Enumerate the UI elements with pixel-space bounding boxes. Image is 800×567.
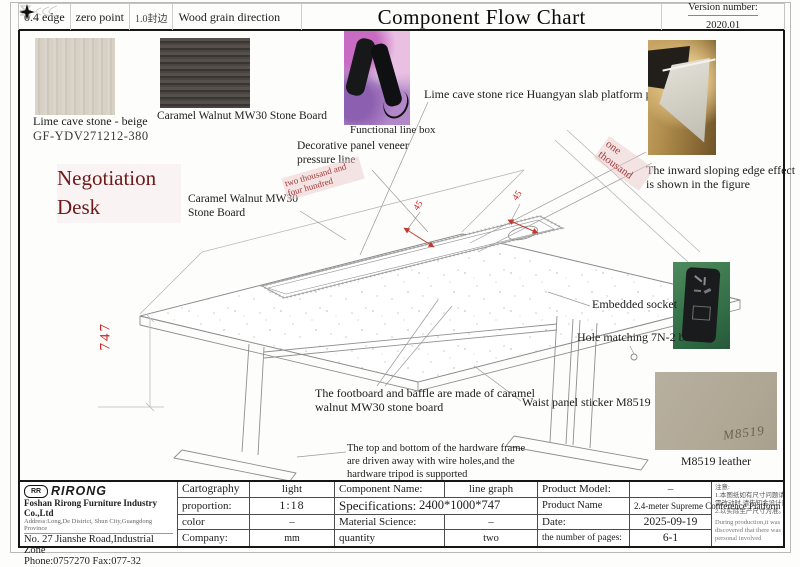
company-name: Foshan Rirong Furniture Industry Co.,Ltd — [24, 498, 173, 518]
caramel-board-label: Caramel Walnut MW30 Stone Board — [188, 193, 320, 221]
socket-hole — [694, 289, 701, 291]
company-address: Address:Long,De District, Shun City,Guan… — [24, 518, 173, 534]
notes-cell: 注意: 1.本图纸如有尺寸问题请及时反馈, 需改动时,请先知会设计部。 2.以实… — [712, 482, 783, 546]
company-street: No. 27 Jianshe Road,Industrial Zone — [24, 534, 173, 556]
embedded-socket-label: Embedded socket — [592, 297, 677, 311]
functional-box-photo — [344, 31, 410, 125]
corner-edge-photo — [648, 40, 716, 155]
proportion-value: 1:18 — [250, 498, 335, 515]
quantity-value: two — [445, 530, 538, 546]
pages-label: the number of pages: — [538, 530, 630, 546]
company-unit-label: Company: — [178, 530, 250, 546]
material-value: – — [445, 515, 538, 531]
hardware-frame-label: The top and bottom of the hardware frame… — [347, 442, 539, 481]
note-line: personal involved — [715, 535, 780, 543]
company-info: RR RIRONG Foshan Rirong Furniture Indust… — [20, 482, 178, 546]
company-phone: Phone:0757270 Fax:077-32 — [24, 556, 173, 567]
m8519-swatch: M8519 — [655, 372, 777, 450]
dim-height-747: 747 — [98, 311, 115, 351]
decorative-line-label: Decorative panel veneer pressure line — [297, 140, 449, 168]
product-name-label: Product Name — [538, 498, 630, 515]
note-line: During production,it was — [715, 519, 780, 527]
m8519-caption: M8519 leather — [655, 454, 777, 469]
cartography-label: Cartography — [178, 482, 250, 498]
color-value: – — [250, 515, 335, 531]
socket-window — [692, 305, 711, 320]
component-name-label: Component Name: — [335, 482, 445, 498]
lime-stone-swatch — [35, 38, 115, 115]
product-model-value: – — [630, 482, 712, 498]
product-name-value: 2.4-meter Supreme Conference Platform — [630, 498, 712, 515]
color-label: color — [178, 515, 250, 531]
product-title: Negotiation Desk — [57, 164, 181, 223]
inward-edge-label: The inward sloping edge effect is shown … — [646, 163, 796, 192]
socket-hole — [704, 288, 712, 294]
cartography-value: light — [250, 482, 335, 498]
lime-stone-code: GF-YDV271212-380 — [33, 129, 149, 144]
title-block: RR RIRONG Foshan Rirong Furniture Indust… — [18, 480, 785, 548]
date-value: 2025-09-19 — [630, 515, 712, 531]
socket-hole — [694, 275, 702, 282]
specifications-label: Specifications: — [339, 498, 416, 514]
lime-stone-caption: Lime cave stone - beige — [33, 114, 148, 129]
company-unit-value: mm — [250, 530, 335, 546]
slab-panel-label: Lime cave stone rice Huangyan slab platf… — [424, 87, 672, 101]
note-line: 注意: — [715, 484, 780, 492]
walnut-caption: Caramel Walnut MW30 Stone Board — [157, 110, 327, 122]
rirong-logo-icon: RR — [24, 485, 48, 498]
quantity-label: quantity — [335, 530, 445, 546]
logo-text: RIRONG — [51, 484, 107, 498]
walnut-swatch — [160, 38, 250, 108]
date-label: Date: — [538, 515, 630, 531]
functional-box-label: Functional line box — [350, 124, 442, 137]
product-model-label: Product Model: — [538, 482, 630, 498]
m8519-mark: M8519 — [722, 423, 765, 444]
specifications-cell: Specifications: 2400*1000*747 — [335, 498, 538, 515]
material-label: Material Science: — [335, 515, 445, 531]
pages-value: 6-1 — [630, 530, 712, 546]
note-line: discovered that there was some — [715, 527, 780, 535]
socket-hole — [703, 277, 706, 285]
component-name-value: line graph — [445, 482, 538, 498]
hole-matching-label: Hole matching 7N-2 buckle — [577, 330, 711, 344]
proportion-label: proportion: — [178, 498, 250, 515]
footboard-label: The footboard and baffle are made of car… — [315, 386, 553, 415]
specifications-value: 2400*1000*747 — [419, 498, 500, 513]
company-logo: RR RIRONG — [24, 484, 173, 498]
